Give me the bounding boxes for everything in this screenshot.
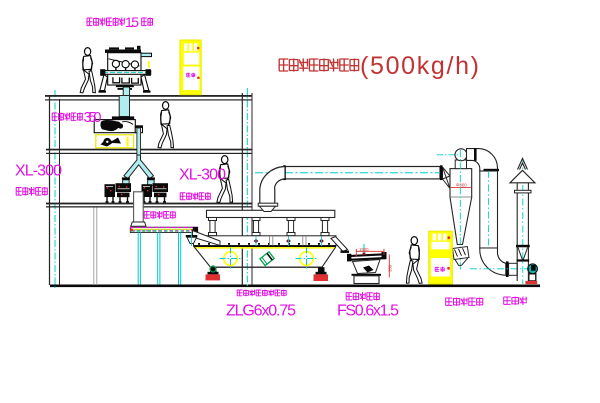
svg-text:Φ300: Φ300 — [456, 183, 467, 188]
svg-text:XL-300: XL-300 — [15, 163, 62, 180]
svg-text:FS0.6x1.5: FS0.6x1.5 — [337, 303, 399, 320]
svg-text:(500kg/h): (500kg/h) — [360, 52, 479, 80]
svg-text:XL-300: XL-300 — [179, 167, 226, 184]
svg-text:1500: 1500 — [359, 247, 369, 252]
svg-text:1.5: 1.5 — [125, 14, 139, 30]
svg-text:350: 350 — [388, 264, 393, 272]
svg-text:350: 350 — [84, 110, 102, 126]
svg-text:ZLG6x0.75: ZLG6x0.75 — [226, 303, 296, 320]
